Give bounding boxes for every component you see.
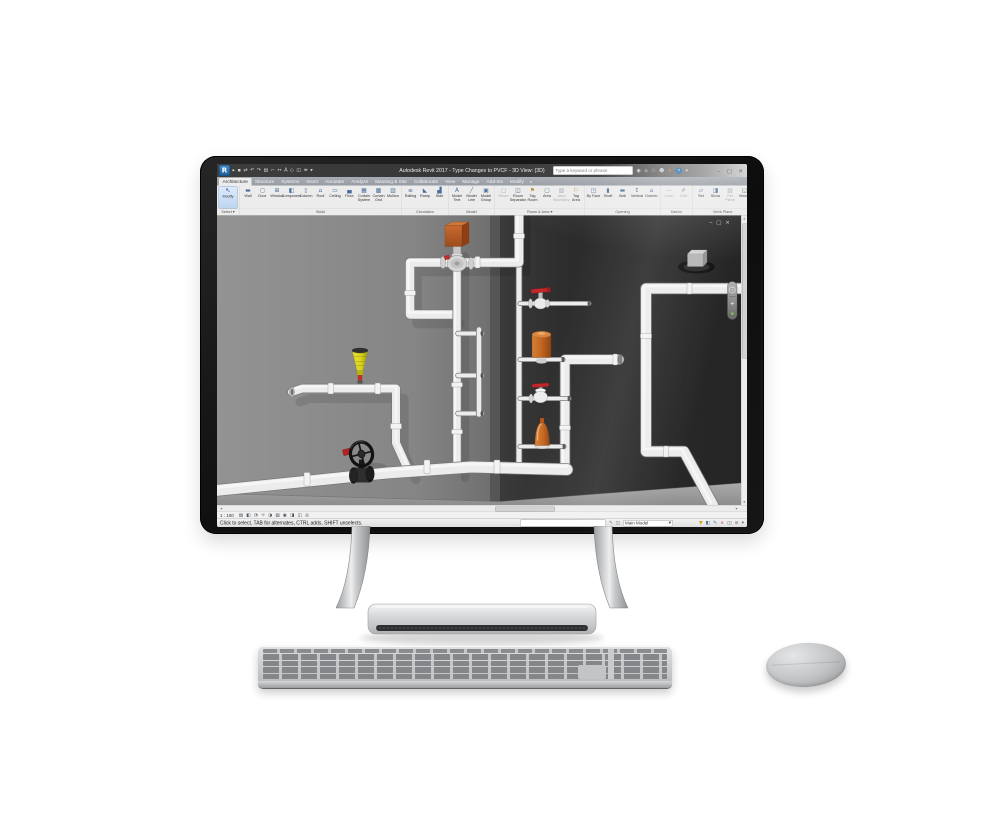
modify-button[interactable]: ↖ Modify: [219, 187, 238, 209]
search-input[interactable]: [553, 166, 633, 175]
mouse: [765, 641, 847, 689]
button-label: Modify: [222, 195, 233, 203]
button-label: Curtain System: [357, 194, 371, 202]
button-label: Tag Room: [526, 194, 540, 202]
panel-label-select[interactable]: Select ▾: [217, 209, 239, 216]
scroll-up-icon[interactable]: ▴: [742, 217, 748, 221]
panel-label-model: Model: [449, 209, 495, 216]
model-group-icon: ▣: [483, 187, 488, 195]
show-work-plane-button[interactable]: ◨Show: [709, 187, 723, 209]
tab-annotate[interactable]: Annotate: [322, 178, 348, 186]
column-icon: ▯: [304, 187, 307, 195]
mullion-button[interactable]: ▥Mullion: [386, 187, 400, 209]
desk-scene: R ▸ ▪ ⇄ ↶ ↷ ▤ ⌐ ↔ A ◇ ◫ ≡ ▾: [0, 0, 985, 820]
button-label: Stair: [436, 194, 444, 202]
tag-area-icon: ⚐: [573, 187, 578, 195]
button-label: Wall: [244, 194, 251, 202]
view-control-bar: 1 : 100 ▤ ◧ ◔ ☼ ◑ ▧ ◉ ◨ ◫ ◎: [217, 512, 747, 519]
ribbon-panel-room-area: □Room ◫Room Separator ⚑Tag Room ▢Area ▧A…: [495, 186, 585, 216]
dimension-icon[interactable]: ↔: [277, 168, 281, 173]
wall-opening-icon: ▬: [620, 187, 625, 195]
ref-plane-button[interactable]: ▨Ref Plane: [723, 187, 737, 209]
button-label: Room Separator: [510, 194, 526, 202]
model-text-icon: A: [455, 187, 459, 195]
tab-manage[interactable]: Manage: [459, 178, 483, 186]
set-work-plane-button[interactable]: ▱Set: [694, 187, 708, 209]
help-menu-caret-icon[interactable]: ▾: [685, 168, 688, 174]
dormer-button[interactable]: ⌂Dormer: [645, 187, 659, 209]
tab-insert[interactable]: Insert: [303, 178, 322, 186]
temporary-hide-icon[interactable]: ◨: [290, 512, 294, 518]
button-label: Viewer: [739, 194, 747, 202]
3d-view[interactable]: .pe{stroke:#787878;stroke-linecap:round;…: [217, 216, 741, 506]
view-scale[interactable]: 1 : 100: [220, 513, 234, 518]
ceiling-button[interactable]: ▭Ceiling: [328, 187, 342, 209]
window-title: Autodesk Revit 2017 - Type Changes to PV…: [367, 168, 577, 174]
button-label: Show: [711, 194, 720, 202]
model-line-icon: ╱: [470, 187, 473, 195]
keyboard-front-edge: [258, 681, 672, 688]
window-icon: ⊞: [275, 187, 280, 195]
crop-view-icon[interactable]: ▧: [275, 512, 279, 518]
vertical-opening-button[interactable]: ↕Vertical: [630, 187, 644, 209]
curtain-grid-button[interactable]: ▩Curtain Grid: [372, 187, 386, 209]
sun-path-icon[interactable]: ◔: [254, 512, 258, 518]
search-icon[interactable]: ◉: [637, 168, 641, 174]
shadows-icon[interactable]: ☼: [261, 512, 265, 518]
ribbon-panel-model: AModel Text ╱Model Line ▣Model Group Mod…: [449, 186, 496, 216]
render-icon[interactable]: ◑: [268, 512, 272, 518]
application-menu-button[interactable]: R: [219, 165, 230, 176]
button-label: Ref Plane: [723, 194, 737, 202]
level-icon: —: [666, 187, 672, 195]
subscription-icon[interactable]: ⌂: [644, 168, 647, 174]
tag-room-button[interactable]: ⚑Tag Room: [526, 187, 540, 209]
button-label: Area Boundary: [553, 194, 569, 202]
ribbon-panel-select: ↖ Modify Select ▾: [217, 186, 240, 216]
railing-button[interactable]: ≡Railing: [404, 187, 418, 209]
grid-icon: #: [681, 187, 686, 195]
button-label: Grid: [680, 194, 687, 202]
roof-icon: ⌂: [319, 187, 323, 195]
column-button[interactable]: ▯Column: [299, 187, 313, 209]
railing-icon: ≡: [408, 187, 413, 195]
stand-arm-left: [336, 526, 370, 608]
button-label: Room: [498, 194, 508, 202]
button-label: Tag Area: [569, 194, 583, 202]
stair-icon: ▟: [437, 187, 441, 195]
measure-icon[interactable]: ⌐: [271, 168, 275, 173]
button-label: Ramp: [420, 194, 430, 202]
door-icon: ◻: [260, 187, 265, 195]
button-label: Level: [665, 194, 674, 202]
monitor-stand: [330, 526, 634, 650]
model-line-button[interactable]: ╱Model Line: [465, 187, 479, 209]
ribbon-tab-bar: Architecture Structure Systems Insert An…: [217, 177, 747, 186]
button-label: Set: [698, 194, 704, 202]
floor-icon: ▄: [347, 187, 351, 195]
grid-button[interactable]: #Grid: [677, 187, 691, 209]
key-row: [263, 661, 667, 667]
text-icon[interactable]: A: [284, 168, 287, 173]
panel-label-work-plane: Work Plane: [693, 209, 748, 216]
viewer-button[interactable]: ◱Viewer: [738, 187, 748, 209]
button-label: Mullion: [387, 194, 399, 202]
editable-toggle-icon[interactable]: ◧: [706, 520, 710, 526]
status-hint: Click to select, TAB for alternates, CTR…: [220, 520, 362, 526]
open-icon[interactable]: ▸: [233, 168, 236, 173]
arrow-key-cluster: [578, 665, 606, 679]
base-vent: [376, 625, 588, 631]
button-label: Vertical: [631, 194, 643, 202]
modify-cursor-icon: ↖: [225, 187, 230, 195]
minimize-button[interactable]: –: [717, 168, 720, 174]
keyboard: [258, 646, 672, 688]
ribbon-panel-opening: ◳By Face ▮Shaft ▬Wall ↕Vertical ⌂Dormer …: [585, 186, 661, 216]
status-toggle-icons: ▼ ◧ ✎ × ◫ ⊘ ▾: [699, 520, 744, 526]
vertical-scrollbar[interactable]: ▴ ▾: [741, 216, 747, 506]
stand-arm-right: [594, 526, 628, 608]
vertical-scroll-thumb[interactable]: [742, 224, 747, 359]
button-label: Roof: [317, 194, 325, 202]
door-button[interactable]: ◻Door: [256, 187, 270, 209]
ribbon-panel-work-plane: ▱Set ◨Show ▨Ref Plane ◱Viewer Work Plane: [693, 186, 748, 216]
filter-icon[interactable]: ▼: [699, 520, 703, 526]
maximize-button[interactable]: ▢: [727, 168, 732, 174]
thin-lines-icon[interactable]: ≡: [304, 168, 308, 173]
room-separator-icon: ◫: [515, 187, 520, 195]
design-option-value: Main Model: [625, 521, 648, 526]
vertical-opening-icon: ↕: [635, 187, 640, 195]
drag-selection-icon[interactable]: ▾: [742, 520, 744, 526]
warnings-icon[interactable]: ×: [720, 520, 724, 526]
ribbon: ↖ Modify Select ▾ ▬Wall ◻Door ⊞Window ◧C…: [217, 186, 747, 216]
tab-architecture[interactable]: Architecture: [219, 178, 251, 186]
button-label: Floor: [345, 194, 354, 202]
key-row: [263, 654, 667, 660]
curtain-system-button[interactable]: ▦Curtain System: [357, 187, 371, 209]
room-separator-button[interactable]: ◫Room Separator: [511, 187, 525, 209]
button-label: By Face: [587, 194, 601, 202]
model-group-button[interactable]: ▣Model Group: [479, 187, 493, 209]
sync-icon[interactable]: ⇄: [243, 168, 247, 173]
tab-modify[interactable]: Modify: [506, 178, 527, 186]
tag-room-icon: ⚑: [530, 187, 535, 195]
shaft-button[interactable]: ▮Shaft: [601, 187, 615, 209]
mullion-icon: ▥: [390, 187, 395, 195]
section-icon[interactable]: ◫: [296, 168, 301, 173]
crop-region-icon[interactable]: ◉: [283, 512, 287, 518]
floor-button[interactable]: ▄Floor: [343, 187, 357, 209]
ribbon-panel-datum: —Level #Grid Datum: [661, 186, 693, 216]
tag-area-button[interactable]: ⚐Tag Area: [569, 187, 583, 209]
component-icon: ◧: [289, 187, 294, 195]
button-label: Model Line: [465, 194, 479, 202]
ribbon-panel-circulation: ≡Railing ◣Ramp ▟Stair Circulation: [402, 186, 449, 216]
curtain-grid-icon: ▩: [376, 187, 381, 195]
revit-application-window: R ▸ ▪ ⇄ ↶ ↷ ▤ ⌐ ↔ A ◇ ◫ ≡ ▾: [217, 164, 747, 527]
editable-only-icon[interactable]: ✎: [609, 521, 613, 526]
ramp-icon: ◣: [423, 187, 427, 195]
button-label: Dormer: [645, 194, 658, 202]
viewport-window-controls[interactable]: ‒ ▢ ×: [709, 220, 731, 226]
button-label: Wall: [619, 194, 626, 202]
panel-label-circulation: Circulation: [402, 209, 448, 216]
select-pinned-icon[interactable]: ⊘: [735, 520, 739, 526]
area-icon: ▢: [544, 187, 549, 195]
exchange-apps-icon[interactable]: ×: [668, 168, 672, 174]
select-links-icon[interactable]: ◫: [727, 520, 731, 526]
reveal-hidden-icon[interactable]: ◫: [297, 512, 301, 518]
mouse-seam: [772, 661, 839, 666]
area-boundary-icon: ▧: [559, 187, 564, 195]
tab-add-ins[interactable]: Add-Ins: [483, 178, 506, 186]
window-controls: – ▢ ×: [717, 168, 743, 174]
button-label: Model Group: [479, 194, 493, 202]
3d-view-icon[interactable]: ◇: [290, 168, 294, 173]
panel-label-opening: Opening: [585, 209, 660, 216]
button-label: Shaft: [604, 194, 613, 202]
keyboard-keys: [263, 649, 667, 679]
by-face-icon: ◳: [591, 187, 596, 195]
key-row: [263, 649, 667, 653]
tab-systems[interactable]: Systems: [278, 178, 303, 186]
button-label: Door: [258, 194, 266, 202]
worksets-icon[interactable]: ◫: [616, 521, 620, 526]
set-icon: ▱: [699, 187, 703, 195]
redo-icon[interactable]: ↷: [257, 168, 261, 173]
infocenter: ◉ ⌂ ☆ ☻ × ? ▾: [553, 166, 688, 175]
detail-level-icon[interactable]: ▤: [239, 512, 243, 518]
component-button[interactable]: ◧Component: [285, 187, 299, 209]
opening-by-face-button[interactable]: ◳By Face: [587, 187, 601, 209]
visual-style-icon[interactable]: ◧: [246, 512, 250, 518]
ceiling-icon: ▭: [332, 187, 337, 195]
button-label: Column: [300, 194, 313, 202]
ribbon-panel-build: ▬Wall ◻Door ⊞Window ◧Component ▯Column ⌂…: [240, 186, 403, 216]
key-row: [263, 667, 667, 673]
title-bar: R ▸ ▪ ⇄ ↶ ↷ ▤ ⌐ ↔ A ◇ ◫ ≡ ▾: [217, 164, 747, 177]
drawing-area[interactable]: .pe{stroke:#787878;stroke-linecap:round;…: [217, 216, 747, 506]
close-button[interactable]: ×: [738, 168, 743, 174]
wall-button[interactable]: ▬Wall: [241, 187, 255, 209]
area-button[interactable]: ▢Area: [540, 187, 554, 209]
wall-opening-button[interactable]: ▬Wall: [616, 187, 630, 209]
tab-massing-site[interactable]: Massing & Site: [372, 178, 411, 186]
button-label: Railing: [405, 194, 416, 202]
panel-label-datum: Datum: [661, 209, 693, 216]
scroll-down-icon[interactable]: ▾: [742, 500, 748, 504]
dormer-icon: ⌂: [650, 187, 654, 195]
qat-menu-icon[interactable]: ▾: [310, 168, 313, 173]
tab-collaborate[interactable]: Collaborate: [410, 178, 441, 186]
numpad-divider: [608, 649, 614, 679]
wall-icon: ▬: [245, 187, 250, 195]
undo-icon[interactable]: ↶: [250, 168, 254, 173]
area-boundary-button[interactable]: ▧Area Boundary: [555, 187, 569, 209]
tab-structure[interactable]: Structure: [251, 178, 277, 186]
print-icon[interactable]: ▤: [263, 168, 268, 173]
panel-label-build: Build: [240, 209, 402, 216]
sign-in-icon[interactable]: ☻: [659, 168, 664, 174]
level-button[interactable]: —Level: [662, 187, 676, 209]
navigation-bar[interactable]: [728, 282, 738, 320]
model-text-button[interactable]: AModel Text: [450, 187, 464, 209]
edit-requests-icon[interactable]: ✎: [713, 520, 717, 526]
button-label: Ceiling: [329, 194, 340, 202]
worksharing-display-icon[interactable]: ◎: [305, 512, 309, 518]
monitor-bezel: R ▸ ▪ ⇄ ↶ ↷ ▤ ⌐ ↔ A ◇ ◫ ≡ ▾: [200, 156, 764, 534]
panel-label-room-area[interactable]: Room & Area ▾: [495, 209, 585, 216]
roof-button[interactable]: ⌂Roof: [314, 187, 328, 209]
help-icon[interactable]: ?: [675, 167, 682, 174]
show-icon: ◨: [713, 187, 718, 195]
favorites-star-icon[interactable]: ☆: [651, 168, 655, 174]
monitor-screen: R ▸ ▪ ⇄ ↶ ↷ ▤ ⌐ ↔ A ◇ ◫ ≡ ▾: [217, 164, 747, 527]
room-button[interactable]: □Room: [497, 187, 511, 209]
tab-view[interactable]: View: [442, 178, 459, 186]
key-row: [263, 674, 667, 680]
room-icon: □: [501, 187, 506, 195]
combo-caret-icon: ▾: [669, 521, 671, 526]
viewer-icon: ◱: [742, 187, 747, 195]
button-label: Area: [543, 194, 551, 202]
tab-analyze[interactable]: Analyze: [348, 178, 372, 186]
shaft-icon: ▮: [606, 187, 609, 195]
curtain-system-icon: ▦: [361, 187, 366, 195]
ramp-button[interactable]: ◣Ramp: [418, 187, 432, 209]
save-icon[interactable]: ▪: [238, 168, 241, 173]
button-label: Model Text: [450, 194, 464, 202]
quick-access-toolbar: ▸ ▪ ⇄ ↶ ↷ ▤ ⌐ ↔ A ◇ ◫ ≡ ▾: [233, 168, 313, 173]
button-label: Curtain Grid: [372, 194, 386, 202]
ref-plane-icon: ▨: [727, 187, 732, 195]
stair-button[interactable]: ▟Stair: [433, 187, 447, 209]
